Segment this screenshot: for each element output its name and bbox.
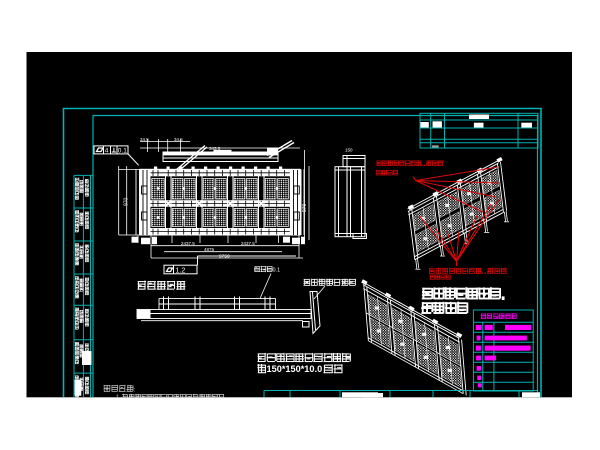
svg-text::: :	[134, 386, 136, 393]
svg-text:2437.5: 2437.5	[181, 241, 195, 246]
svg-text:343.5: 343.5	[209, 146, 221, 151]
svg-text:0.1: 0.1	[118, 148, 127, 155]
svg-text:0.1: 0.1	[273, 268, 281, 274]
svg-text:1.: 1.	[116, 395, 121, 401]
svg-text:150*150*10.0: 150*150*10.0	[267, 364, 323, 374]
svg-text:1.2: 1.2	[176, 267, 186, 274]
svg-text:34.5: 34.5	[174, 137, 183, 142]
svg-text:4875: 4875	[204, 247, 215, 252]
svg-text:970: 970	[302, 203, 308, 212]
svg-text:970: 970	[124, 197, 130, 206]
svg-text:150: 150	[345, 148, 353, 153]
svg-text:2437.5: 2437.5	[241, 241, 255, 246]
svg-text:34.5: 34.5	[140, 137, 149, 142]
svg-text:4: 4	[105, 148, 109, 155]
